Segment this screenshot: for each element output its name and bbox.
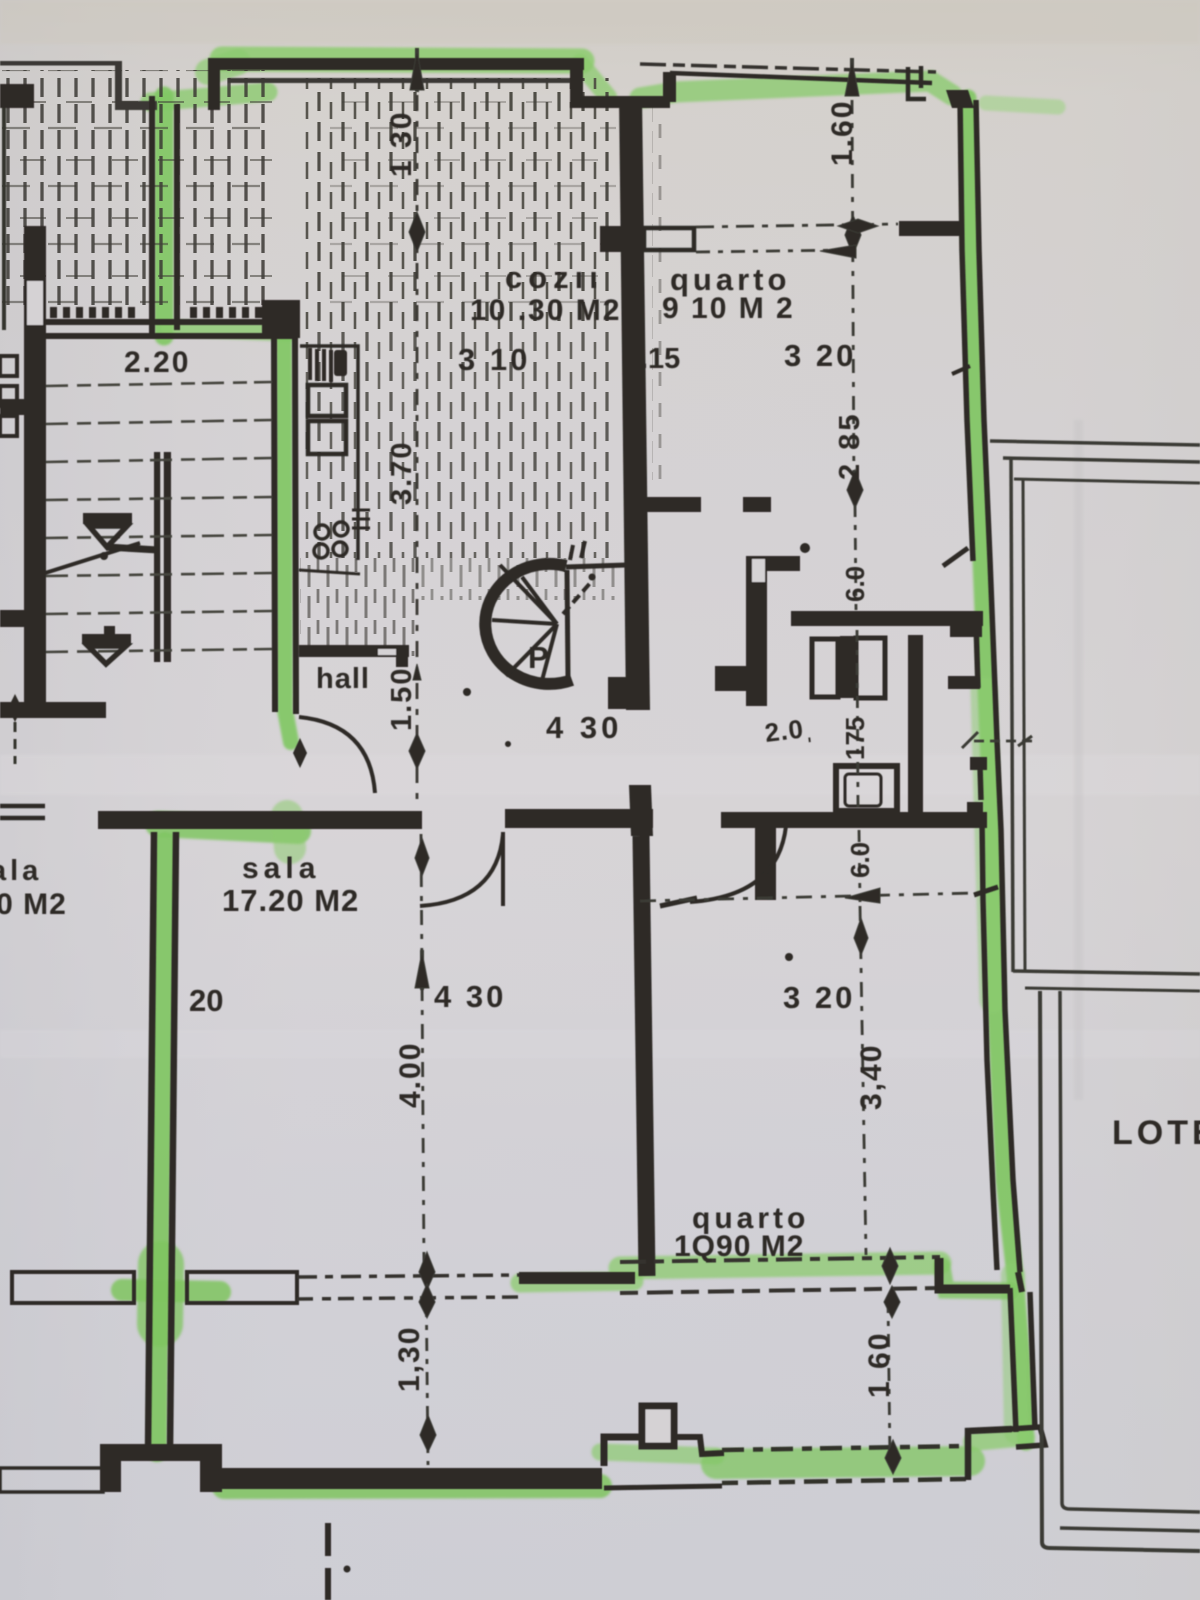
svg-text:3.70: 3.70 (386, 441, 418, 505)
svg-text:2.0ˌ: 2.0ˌ (763, 712, 815, 748)
svg-text:4 30: 4 30 (434, 979, 506, 1014)
svg-text:cozıı: cozıı (505, 260, 604, 295)
svg-text:4.00: 4.00 (394, 1042, 427, 1108)
svg-text:LOTE: LOTE (1112, 1114, 1200, 1152)
svg-text:3 10: 3 10 (458, 342, 530, 377)
svg-text:sala: sala (242, 852, 320, 885)
svg-text:3 20: 3 20 (784, 338, 856, 373)
svg-text:9 10 M 2: 9 10 M 2 (662, 292, 795, 325)
svg-text:1,30: 1,30 (393, 1326, 426, 1392)
svg-text:3 20: 3 20 (783, 980, 855, 1015)
svg-text:4 30: 4 30 (546, 710, 622, 745)
svg-text:2 85: 2 85 (834, 412, 866, 480)
svg-text:3,40: 3,40 (855, 1044, 888, 1110)
svg-text:1.60: 1.60 (826, 100, 859, 166)
svg-text:P: P (528, 640, 549, 675)
svg-text:1 60: 1 60 (863, 1332, 896, 1398)
svg-text:20: 20 (189, 983, 223, 1018)
svg-text:'0 M2: '0 M2 (0, 888, 67, 921)
svg-text:6.0: 6.0 (845, 842, 875, 878)
svg-text:1Q90 M2: 1Q90 M2 (674, 1230, 804, 1263)
svg-text:175: 175 (840, 717, 870, 760)
svg-text:10 .30 M2: 10 .30 M2 (470, 294, 621, 327)
svg-text:1 30: 1 30 (385, 111, 418, 177)
svg-text:6.0: 6.0 (840, 566, 870, 602)
svg-text:17.20 M2: 17.20 M2 (222, 883, 359, 918)
svg-text:1.50: 1.50 (386, 667, 418, 731)
svg-text:hall: hall (316, 663, 370, 695)
svg-text:2.20: 2.20 (124, 346, 190, 379)
svg-text:.15: .15 (640, 343, 680, 375)
svg-text:ala: ala (0, 855, 42, 887)
